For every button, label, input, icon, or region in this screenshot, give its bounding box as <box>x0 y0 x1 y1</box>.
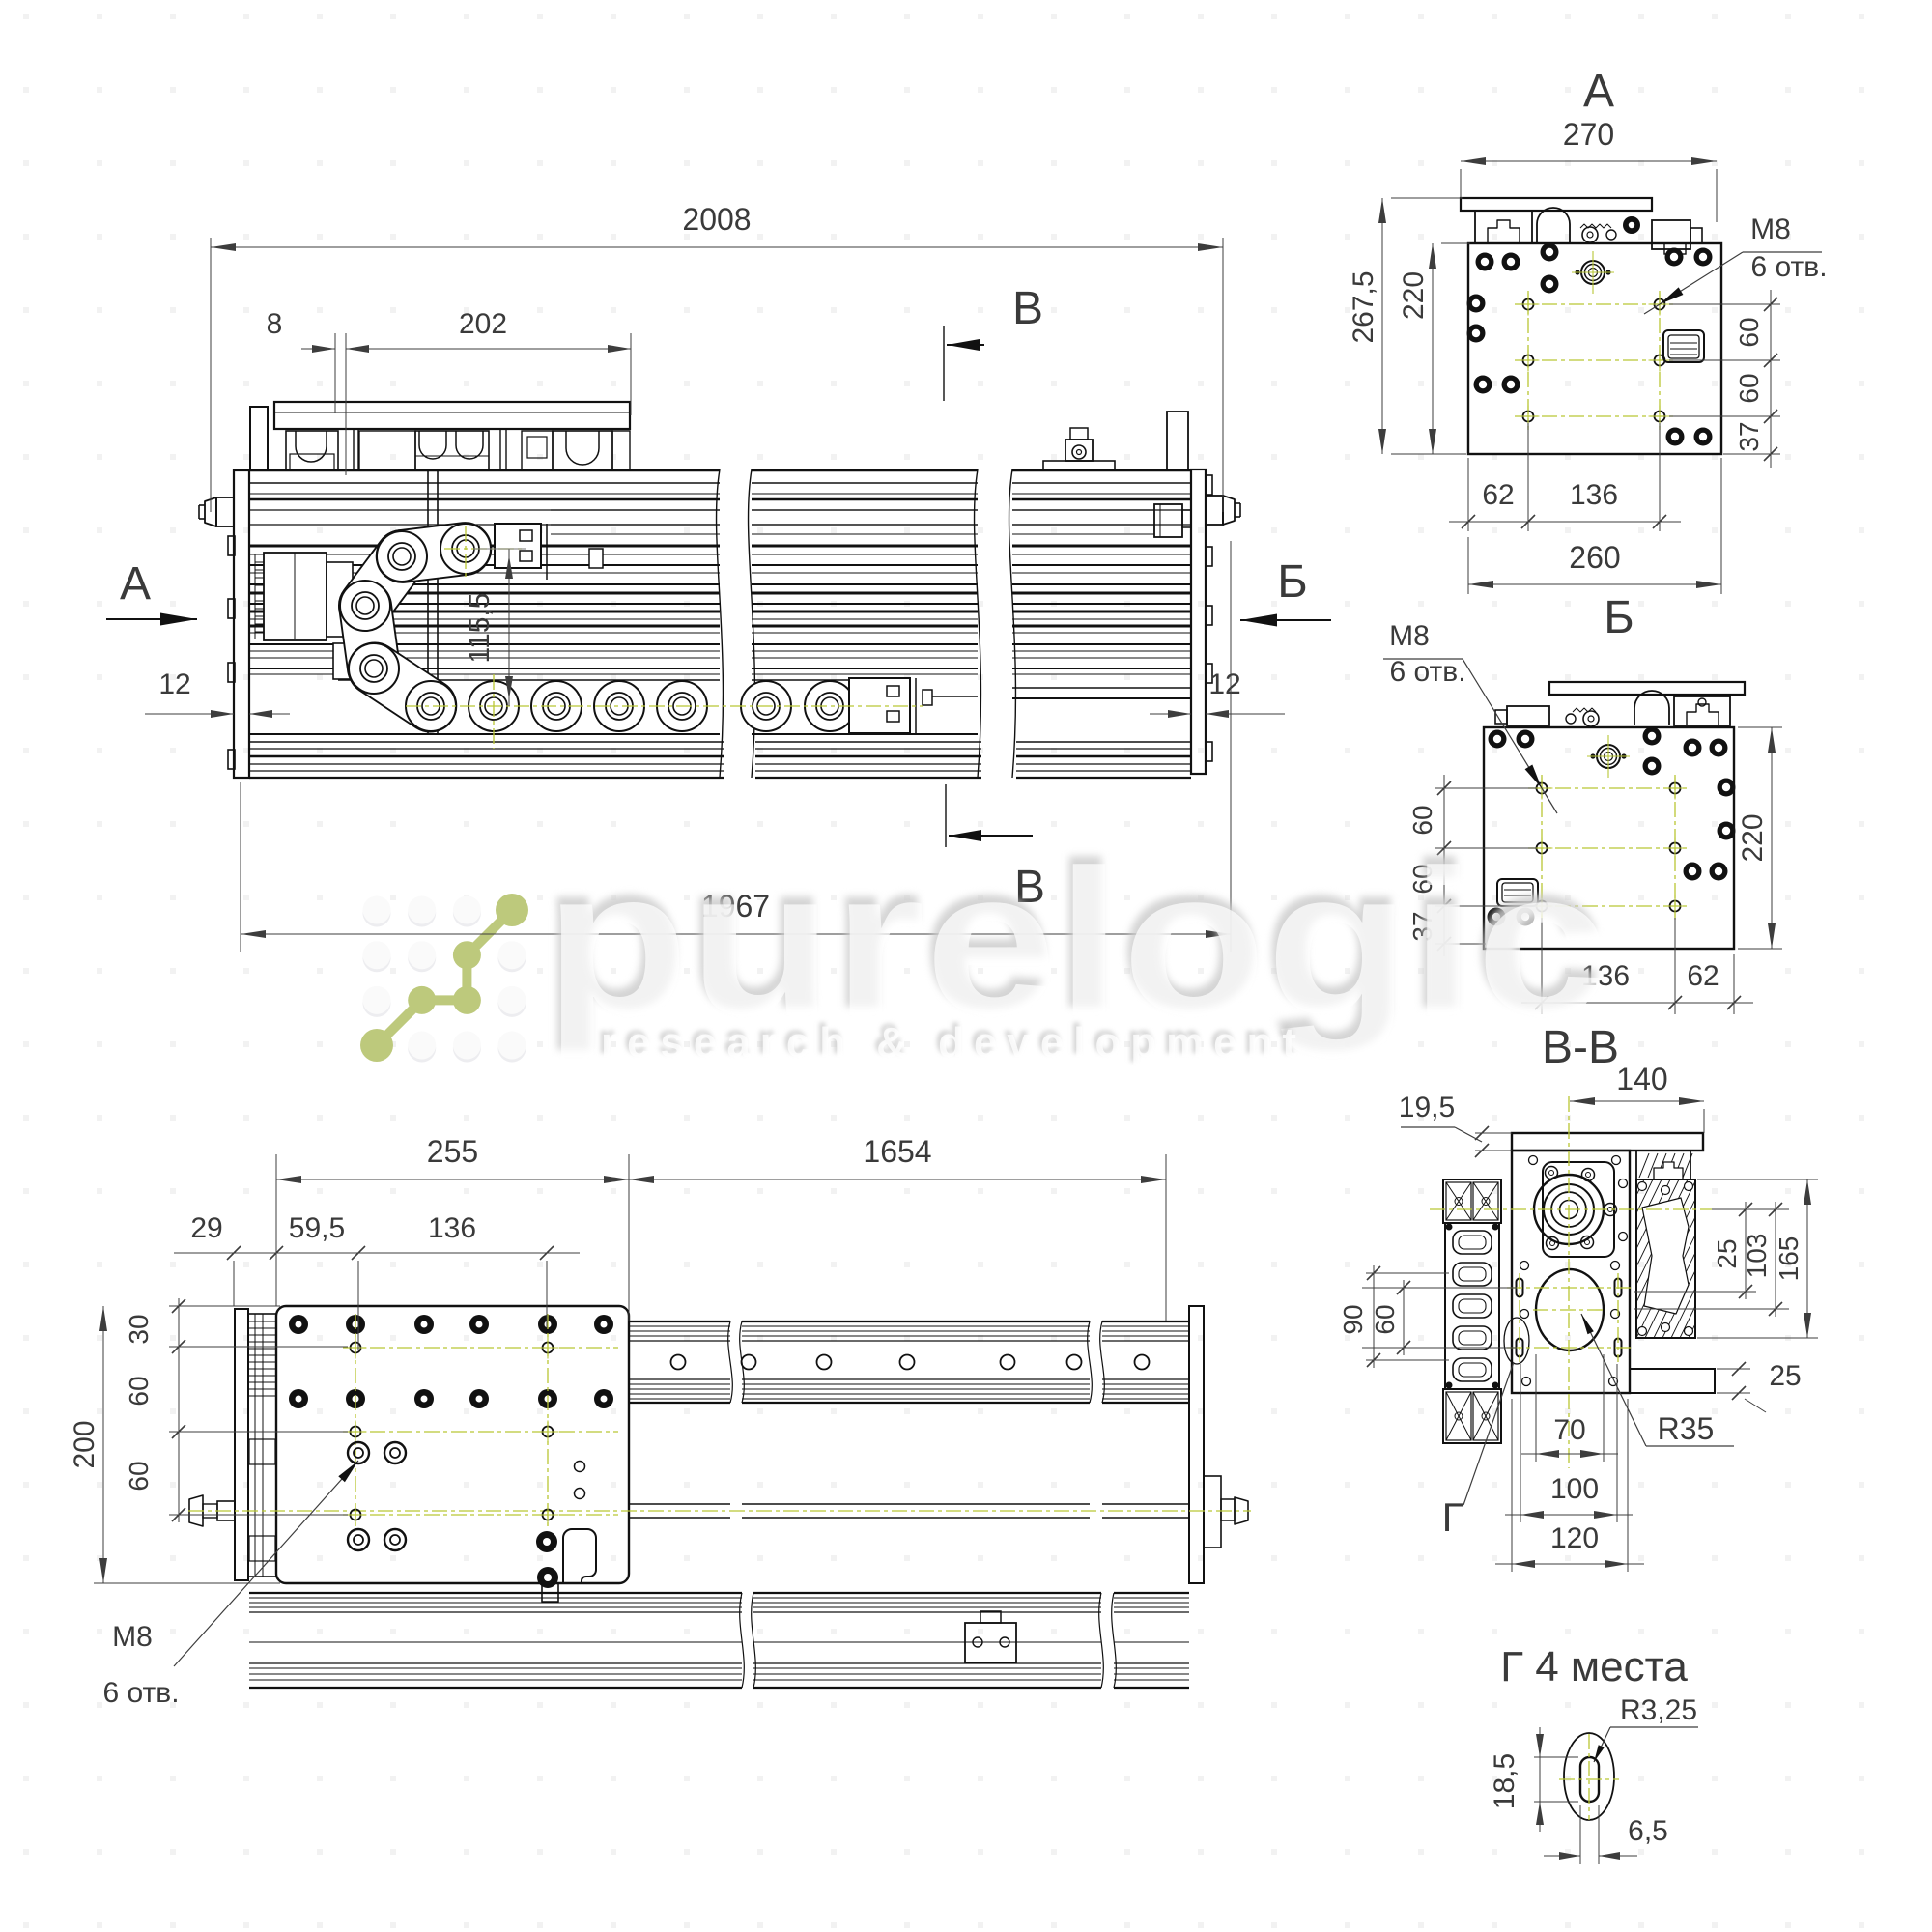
svg-text:Б: Б <box>1277 556 1308 608</box>
svg-text:Б: Б <box>1604 592 1634 643</box>
svg-text:103: 103 <box>1742 1234 1772 1279</box>
svg-text:136: 136 <box>428 1212 476 1244</box>
svg-text:140: 140 <box>1616 1062 1667 1096</box>
svg-text:18,5: 18,5 <box>1489 1753 1520 1809</box>
svg-text:R3,25: R3,25 <box>1620 1694 1697 1726</box>
svg-text:А: А <box>120 558 151 610</box>
svg-text:А: А <box>1583 66 1614 117</box>
svg-text:62: 62 <box>1482 479 1514 511</box>
svg-text:6,5: 6,5 <box>1628 1815 1668 1847</box>
svg-text:25: 25 <box>1712 1238 1742 1268</box>
svg-text:220: 220 <box>1737 813 1769 862</box>
svg-text:270: 270 <box>1563 117 1614 152</box>
svg-text:6 отв.: 6 отв. <box>102 1677 179 1709</box>
svg-text:19,5: 19,5 <box>1399 1092 1455 1123</box>
svg-text:research & development: research & development <box>601 1019 1306 1066</box>
svg-text:1654: 1654 <box>863 1134 931 1169</box>
svg-text:В: В <box>1012 283 1043 334</box>
svg-text:120: 120 <box>1550 1522 1599 1554</box>
svg-text:М8: М8 <box>1750 213 1791 245</box>
svg-text:90: 90 <box>1338 1304 1368 1334</box>
svg-text:R35: R35 <box>1658 1411 1715 1446</box>
svg-text:29: 29 <box>190 1212 222 1244</box>
svg-text:М8: М8 <box>112 1621 153 1653</box>
svg-text:8: 8 <box>267 308 283 340</box>
svg-text:267,5: 267,5 <box>1348 270 1379 343</box>
svg-text:202: 202 <box>459 308 507 340</box>
svg-text:255: 255 <box>427 1134 478 1169</box>
svg-text:200: 200 <box>69 1420 100 1468</box>
svg-text:59,5: 59,5 <box>289 1212 345 1244</box>
svg-text:12: 12 <box>1208 668 1240 700</box>
svg-text:Г 4 места: Г 4 места <box>1500 1643 1688 1690</box>
svg-text:6 отв.: 6 отв. <box>1389 656 1465 688</box>
svg-text:136: 136 <box>1570 479 1618 511</box>
svg-text:37: 37 <box>1734 421 1764 451</box>
svg-text:70: 70 <box>1553 1414 1585 1446</box>
svg-text:12: 12 <box>158 668 190 700</box>
svg-text:60: 60 <box>124 1376 154 1406</box>
svg-text:115,5: 115,5 <box>464 593 496 664</box>
svg-text:60: 60 <box>1370 1304 1400 1334</box>
svg-text:60: 60 <box>1734 373 1764 403</box>
svg-text:60: 60 <box>1734 317 1764 347</box>
svg-text:100: 100 <box>1550 1473 1599 1505</box>
svg-text:25: 25 <box>1769 1360 1801 1392</box>
svg-text:Г: Г <box>1442 1494 1464 1540</box>
svg-text:165: 165 <box>1774 1236 1804 1282</box>
svg-text:2008: 2008 <box>682 202 751 237</box>
svg-text:М8: М8 <box>1389 620 1430 652</box>
svg-text:220: 220 <box>1398 271 1430 320</box>
svg-text:30: 30 <box>124 1314 154 1344</box>
svg-text:260: 260 <box>1569 540 1620 575</box>
svg-text:60: 60 <box>124 1461 154 1491</box>
svg-text:6 отв.: 6 отв. <box>1750 251 1827 283</box>
svg-text:62: 62 <box>1687 960 1719 992</box>
